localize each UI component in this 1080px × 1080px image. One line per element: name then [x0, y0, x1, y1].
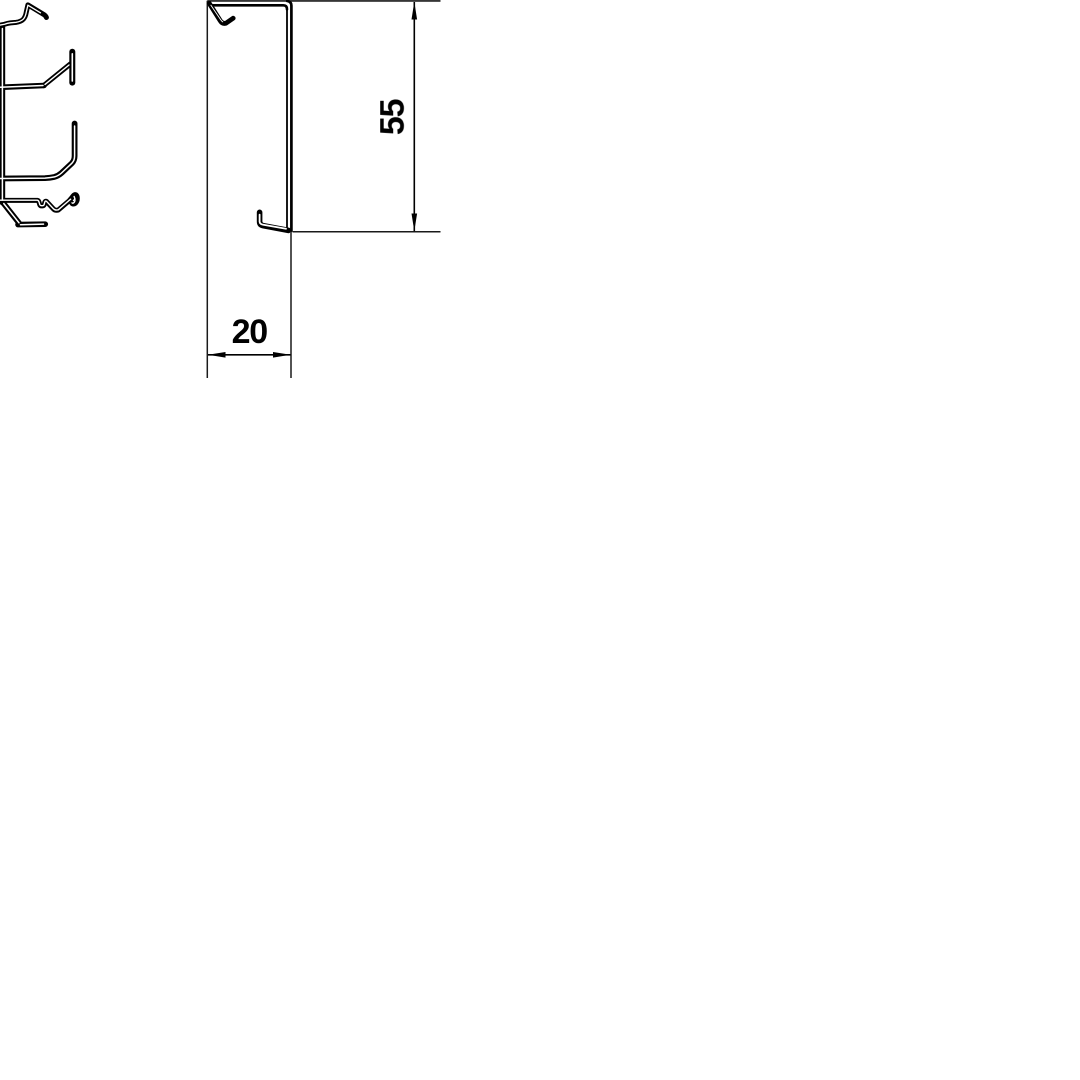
svg-text:55: 55: [374, 99, 412, 135]
svg-text:20: 20: [232, 313, 268, 351]
